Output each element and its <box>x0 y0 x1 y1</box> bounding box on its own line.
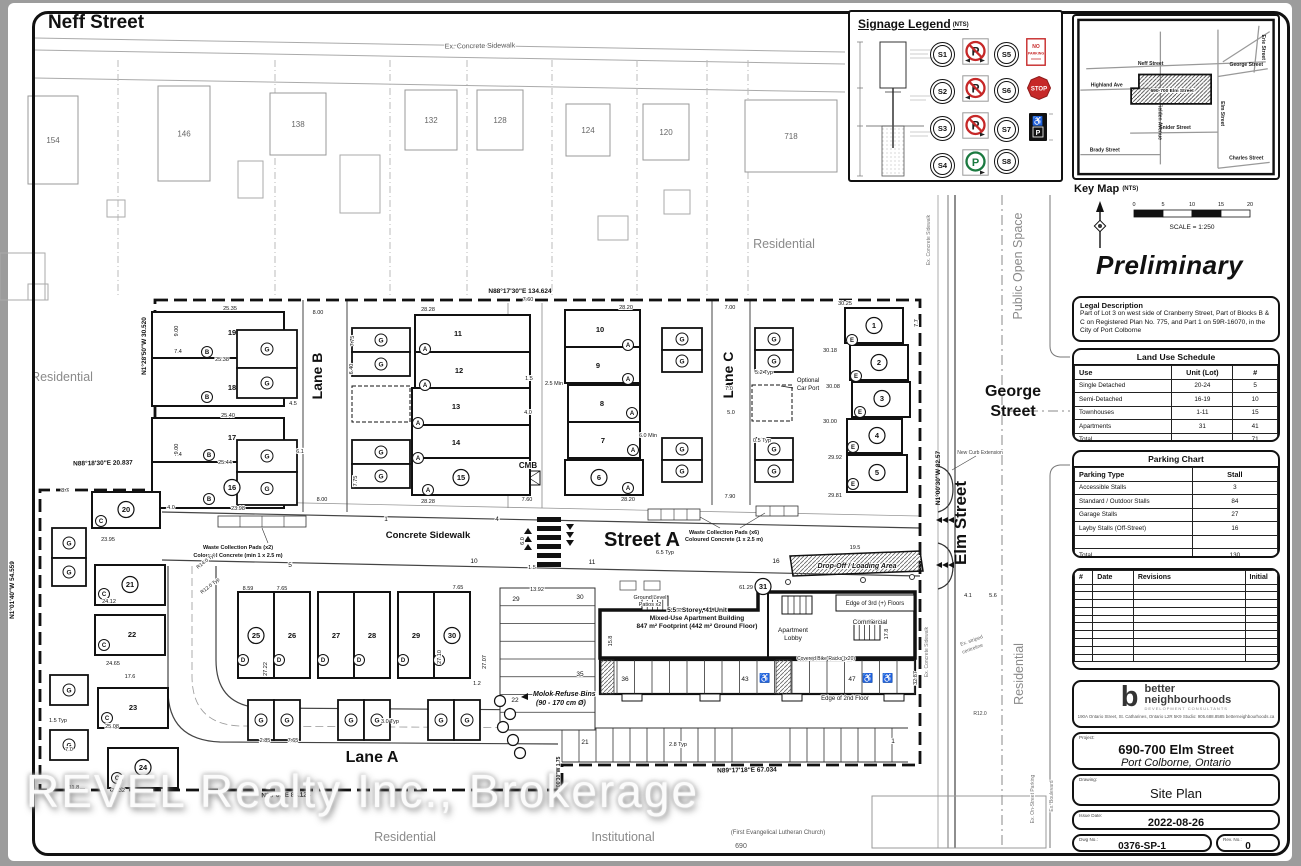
table-cell: 41 <box>1233 420 1278 434</box>
svg-text:P: P <box>972 157 979 169</box>
table-cell <box>1245 631 1277 639</box>
parking-row: Garage Stalls27 <box>1075 508 1278 522</box>
table-cell: Townhouses <box>1075 406 1172 420</box>
revisions-empty-row <box>1075 639 1278 647</box>
key-map-street-label: Neff Street <box>1138 61 1164 67</box>
table-cell <box>1093 631 1134 639</box>
table-cell: Garage Stalls <box>1075 508 1193 522</box>
table-cell <box>1075 535 1193 549</box>
crosswalk-stripe <box>537 517 561 522</box>
table-cell <box>1093 600 1134 608</box>
legal-description-panel: Legal Description Part of Lot 3 on west … <box>1072 296 1280 342</box>
lot-number: 13 <box>452 402 460 411</box>
legend-item-S8: S8 <box>994 149 1026 174</box>
scale-segment <box>1221 210 1250 217</box>
revisions-empty-row <box>1075 654 1278 662</box>
crosswalk-stripe <box>537 544 561 549</box>
molok-bin <box>515 748 526 759</box>
table-cell <box>1133 623 1245 631</box>
dimension-label: 30.08 <box>826 384 840 390</box>
dimension-label: 2.85 <box>260 738 271 744</box>
lot-number: 18 <box>228 383 236 392</box>
dimension-label: 7.65 <box>277 586 288 592</box>
bollard <box>786 580 791 585</box>
table-cell: 20-24 <box>1172 379 1233 393</box>
key-map-street-label: Charles Street <box>1229 155 1264 161</box>
legend-item-S3: S3P <box>930 112 989 144</box>
lot-number: 20 <box>122 505 130 514</box>
revisions-table: #DateRevisionsInitial <box>1074 570 1278 662</box>
stall-number: 5 <box>288 562 292 569</box>
revisions-empty-row <box>1075 623 1278 631</box>
dimension-label: 23.95 <box>101 537 115 543</box>
legend-circle: S2 <box>930 79 955 104</box>
column-header: Stall <box>1192 468 1277 482</box>
lot-number: 29 <box>412 631 420 640</box>
lot-number: 26 <box>288 631 296 640</box>
rev-no-label: Rev. No.: <box>1223 837 1242 842</box>
scale-tick-label: 20 <box>1247 202 1253 208</box>
table-cell: 15 <box>1233 406 1278 420</box>
garage-letter: G <box>264 486 269 493</box>
street-label: Street A <box>604 529 680 551</box>
shed-outline <box>238 161 263 198</box>
dwg-no-value: 0376-SP-1 <box>1080 841 1204 852</box>
stall-number: 11 <box>589 559 596 566</box>
stall-number: 22 <box>511 697 519 704</box>
parking-row <box>1075 535 1278 549</box>
leader-line <box>700 517 720 528</box>
house-number: 120 <box>659 128 673 137</box>
dimension-label: 7.0 <box>65 747 73 753</box>
dimension-label: 29.92 <box>828 455 842 461</box>
logo-tagline: DEVELOPMENT CONSULTANTS <box>1144 706 1231 711</box>
key-map-street-label: Elm Street <box>1219 101 1225 126</box>
table-cell: 16-19 <box>1172 393 1233 407</box>
table-cell <box>1245 584 1277 592</box>
lot-number: 9 <box>596 361 600 370</box>
compass-dot <box>1098 224 1102 228</box>
accessible-parking-icon: ♿ <box>862 672 873 683</box>
drawing-title-block: Drawing: Site Plan <box>1072 774 1280 806</box>
garage-letter: G <box>348 717 353 724</box>
dimension-label: 7.65 <box>288 738 299 744</box>
annotation: Car Port <box>797 386 820 392</box>
dimension-label: 13.92 <box>530 587 544 593</box>
unit-type-letter: A <box>630 411 635 417</box>
key-map-street-label: George Street <box>1230 62 1264 68</box>
annotation: Lobby <box>784 635 802 642</box>
key-map-street-label: Erie Street <box>1260 35 1266 61</box>
bearing-label: N88°18'30"E 20.837 <box>73 458 133 467</box>
stall-number: 21 <box>581 739 589 746</box>
dimension-label: 7.75 <box>353 476 359 487</box>
land-use-row: Townhouses1-1115 <box>1075 406 1278 420</box>
building-bump <box>622 694 642 701</box>
stall-number: 47 <box>848 676 856 683</box>
dimension-label: 28.28 <box>421 307 435 313</box>
stall-number: 30 <box>576 594 584 601</box>
area-label: Residential <box>31 370 93 384</box>
key-map-site-label: 690-700 Elm Street <box>1150 88 1194 94</box>
dimension-label: 25.44 <box>218 460 232 466</box>
dimension-label: 7.75 <box>350 336 356 347</box>
unit-type-letter: D <box>277 658 282 664</box>
table-cell <box>1075 646 1093 654</box>
accessible-parking-icon: ♿ <box>759 672 770 683</box>
stall-number: 35 <box>576 671 584 678</box>
dimension-label: 9.00 <box>174 326 180 337</box>
table-cell <box>1075 615 1093 623</box>
land-use-schedule-table: UseUnit (Lot)#Single Detached20-245Semi-… <box>1074 365 1278 442</box>
unit-type-letter: E <box>858 410 862 416</box>
street-label: Neff Street <box>48 12 145 33</box>
dimension-label: 5.0 <box>727 410 735 416</box>
legend-id: S4 <box>933 156 952 175</box>
table-cell <box>1133 654 1245 662</box>
annotation: R12.0 <box>973 711 987 717</box>
dimension-label: 6.1 <box>296 449 304 455</box>
land-use-row: Semi-Detached16-1910 <box>1075 393 1278 407</box>
lot-number: 27 <box>332 631 340 640</box>
dimension-label: 8.7 <box>61 488 69 494</box>
table-cell: Total <box>1075 549 1193 559</box>
parking-chart-panel: Parking Chart Parking TypeStallAccessibl… <box>1072 450 1280 558</box>
dimension-label: 17.6 <box>125 674 136 680</box>
lot-number: 23 <box>129 703 137 712</box>
table-cell <box>1245 654 1277 662</box>
annotation: CMB <box>519 461 537 470</box>
garage-letter: G <box>374 717 379 724</box>
annotation: R12.0 Typ <box>200 577 222 596</box>
lot <box>412 425 530 458</box>
table-cell <box>1093 623 1134 631</box>
key-map-street-label: Highland Ave <box>1091 82 1123 88</box>
garage-letter: G <box>771 358 776 365</box>
land-use-schedule-title: Land Use Schedule <box>1074 350 1278 365</box>
dimension-label: 6.0 <box>520 537 526 545</box>
lot-number: 14 <box>452 438 461 447</box>
table-cell: 130 <box>1192 549 1277 559</box>
svg-text:NO: NO <box>1032 44 1040 50</box>
garage-letter: G <box>771 446 776 453</box>
dimension-label: 25.35 <box>223 306 237 312</box>
legend-circle: S7 <box>994 117 1019 142</box>
project-label: Project: <box>1079 735 1095 740</box>
bearing-label: N1°00'30"W 1.75 <box>556 756 562 795</box>
dimension-label: 7.0 <box>725 386 733 392</box>
parking-chart-title: Parking Chart <box>1074 452 1278 467</box>
key-map: Neff StreetHighland AveFielden AvenueElm… <box>1074 16 1278 178</box>
area-label: Public Open Space <box>1011 212 1025 319</box>
annotation: 690 <box>735 843 747 850</box>
street-label: Concrete Sidewalk <box>386 530 471 541</box>
signage-legend-panel: Signage Legend(NTS) S1PS2PS3PS4PS5NOPARK… <box>848 10 1063 182</box>
lot-number: 2 <box>877 358 881 367</box>
annotation: Ground Level <box>633 595 666 601</box>
yield-triangle <box>566 540 574 546</box>
rev-no-value: 0 <box>1224 841 1272 852</box>
scale-segment <box>1163 210 1192 217</box>
revisions-empty-row <box>1075 607 1278 615</box>
table-cell: Accessible Stalls <box>1075 481 1193 495</box>
annotation: Commercial <box>853 619 888 626</box>
table-cell <box>1245 615 1277 623</box>
stall-number: 1 <box>891 738 895 745</box>
garage-letter: G <box>679 336 684 343</box>
svg-text:PARKING: PARKING <box>1028 52 1045 56</box>
area-label: Residential <box>374 830 436 844</box>
annotation: Edge of 2nd Floor <box>821 696 869 702</box>
molok-bin <box>498 722 509 733</box>
dimension-label: 8.59 <box>243 586 254 592</box>
unit-type-letter: A <box>626 343 631 349</box>
parking-row: Layby Stalls (Off-Street)16 <box>1075 522 1278 536</box>
dimension-label: 7.90 <box>725 494 736 500</box>
key-map-panel: Neff StreetHighland AveFielden AvenueElm… <box>1072 14 1280 180</box>
legend-item-S5: S5NOPARKING <box>994 38 1046 71</box>
garage-letter: G <box>679 468 684 475</box>
unit-type-letter: B <box>205 350 210 356</box>
legend-id: S1 <box>933 45 952 64</box>
annotation: Covered Bike Racks (x20) <box>797 656 855 662</box>
key-map-street-label: Fielden Avenue <box>1156 103 1162 140</box>
dimension-label: 11.8 <box>69 785 79 791</box>
garage-letter: G <box>378 473 383 480</box>
table-cell: 16 <box>1192 522 1277 536</box>
table-cell: 1-11 <box>1172 406 1233 420</box>
stall-number: 10 <box>470 558 478 565</box>
table-cell <box>1192 535 1277 549</box>
street-label: George <box>985 383 1041 400</box>
building-bump <box>884 694 904 701</box>
house-number: 132 <box>424 116 438 125</box>
no-parking-icon: P <box>962 38 989 70</box>
garage-letter: G <box>66 569 71 576</box>
annotation: Drop-Off / Loading Area <box>818 563 897 570</box>
leader-line <box>740 513 765 528</box>
legal-description-title: Legal Description <box>1080 301 1272 310</box>
garage-letter: G <box>378 361 383 368</box>
table-cell: 27 <box>1192 508 1277 522</box>
column-header: Date <box>1093 571 1134 585</box>
lot-number: 16 <box>228 483 236 492</box>
annotation: Optional <box>797 378 819 384</box>
dimension-label: 15.8 <box>608 636 614 647</box>
annotation: Ex. On-Street Parking <box>1030 774 1036 823</box>
garage-letter: G <box>264 453 269 460</box>
dimension-label: 28.20 <box>619 305 633 311</box>
bearing-label: N1°01'40"W 54.559 <box>8 561 16 619</box>
annotation: (90 - 170 cm Ø) <box>536 700 586 707</box>
neff-street-edge <box>35 38 845 52</box>
table-cell <box>1093 646 1134 654</box>
revisions-empty-row <box>1075 646 1278 654</box>
dimension-label: 30.00 <box>823 419 837 425</box>
project-name: 690-700 Elm Street <box>1080 742 1272 757</box>
key-map-street-label: Snider Street <box>1159 125 1191 131</box>
table-cell <box>1075 592 1093 600</box>
dimension-label: 5.6 <box>989 593 997 599</box>
stall-number: 4 <box>495 516 499 523</box>
unit-type-letter: A <box>426 488 431 494</box>
drawing-name: Site Plan <box>1080 786 1272 801</box>
dimension-label: 24.12 <box>102 599 116 605</box>
lot <box>415 352 530 388</box>
dimension-label: 27.10 <box>437 650 443 664</box>
table-cell <box>1093 654 1134 662</box>
lot-number: 15 <box>457 473 465 482</box>
house-number: 128 <box>493 116 507 125</box>
yield-triangle <box>942 562 948 568</box>
issue-date-label: Issue Date: <box>1079 813 1102 818</box>
yield-triangle <box>566 524 574 530</box>
scale-segment <box>1134 210 1163 217</box>
rev-no-block: Rev. No.: 0 <box>1216 834 1280 852</box>
revisions-header-row: #DateRevisionsInitial <box>1075 571 1278 585</box>
lot-number: 10 <box>596 325 604 334</box>
unit-type-letter: E <box>851 445 855 451</box>
dimension-label: 7.7 <box>914 319 920 327</box>
table-cell <box>1245 623 1277 631</box>
project-city: Port Colborne, Ontario <box>1080 757 1272 769</box>
table-cell <box>1245 600 1277 608</box>
garage-letter: G <box>679 358 684 365</box>
crosswalk-stripe <box>537 526 561 531</box>
unit-type-letter: D <box>401 658 406 664</box>
key-map-street-label: Brady Street <box>1090 148 1120 154</box>
dimension-label: 1.5 <box>525 376 533 382</box>
bearing-label: N88°17'30"E 134.624 <box>488 287 552 295</box>
optional-car-port <box>752 385 792 421</box>
bearing-label: N1°00'30"W 82.57 <box>934 451 942 506</box>
logo-address: 190A Ontario Street, St. Catharines, Ont… <box>1074 714 1278 719</box>
dimension-label: 4.5 <box>289 401 297 407</box>
table-cell <box>1075 654 1093 662</box>
annotation: Ex. Concrete Sidewalk <box>924 626 930 677</box>
area-label: Institutional <box>591 830 654 844</box>
no-parking-text-icon: NOPARKING <box>1026 38 1046 71</box>
table-cell: Single Detached <box>1075 379 1172 393</box>
garage-letter: G <box>679 446 684 453</box>
dimension-label: 7.60 <box>523 297 534 303</box>
lot-number: 22 <box>128 630 136 639</box>
column-header: # <box>1075 571 1093 585</box>
unit-type-letter: A <box>626 486 631 492</box>
ground-level-patio <box>620 581 636 590</box>
lot <box>415 315 530 352</box>
shed-outline <box>340 155 380 213</box>
revisions-empty-row <box>1075 615 1278 623</box>
stall-number: 29 <box>512 596 520 603</box>
issue-date-block: Issue Date: 2022-08-26 <box>1072 810 1280 830</box>
legend-circle: S8 <box>994 149 1019 174</box>
annotation: (First Evangelical Lutheran Church) <box>731 830 825 836</box>
church-outline <box>872 796 1046 848</box>
hatched-stall <box>601 660 614 694</box>
legend-circle: S1 <box>930 42 955 67</box>
accessible-parking-icon: ♿P <box>1026 112 1054 147</box>
legal-description-text: Part of Lot 3 on west side of Cranberry … <box>1080 310 1272 336</box>
unit-type-letter: C <box>105 716 110 722</box>
lot-number: 21 <box>126 580 134 589</box>
legend-circle: S5 <box>994 42 1019 67</box>
land-use-schedule-panel: Land Use Schedule UseUnit (Lot)#Single D… <box>1072 348 1280 442</box>
street-label: Street <box>990 403 1036 420</box>
legend-item-S7: S7♿P <box>994 112 1054 147</box>
garage-letter: G <box>378 449 383 456</box>
street-label: Elm Street <box>951 481 970 565</box>
issue-date-value: 2022-08-26 <box>1080 817 1272 829</box>
unit-type-letter: B <box>207 497 212 503</box>
table-cell <box>1133 639 1245 647</box>
garage-letter: G <box>284 717 289 724</box>
lot-number: 12 <box>455 366 463 375</box>
legend-id: S6 <box>997 81 1016 100</box>
dimension-label: 17.8 <box>884 629 890 640</box>
dimension-label: 2.5 Min <box>545 381 563 387</box>
signage-legend-title: Signage Legend(NTS) <box>858 17 969 31</box>
unit-type-letter: A <box>416 456 421 462</box>
stall-number: 1 <box>384 516 388 523</box>
annotation: Patios x2 <box>639 602 662 608</box>
stop-sign-icon: STOP <box>1026 75 1052 106</box>
lot-number: 8 <box>600 399 604 408</box>
dimension-label: 25.40 <box>221 413 235 419</box>
dimension-label: 1.5 <box>528 565 536 571</box>
legend-id: S7 <box>997 120 1016 139</box>
no-parking-icon: P <box>962 75 989 107</box>
leader-line <box>262 528 268 543</box>
table-cell: 84 <box>1192 495 1277 509</box>
street-label: Lane A <box>346 749 399 766</box>
dimension-label: 7.4 <box>174 349 182 355</box>
lot-number: 30 <box>448 631 456 640</box>
project-title-block: Project: 690-700 Elm Street Port Colborn… <box>1072 732 1280 770</box>
shed-outline <box>664 190 690 214</box>
annotation: 5.5 - Storey, 41 Unit <box>667 607 728 614</box>
molok-bin <box>505 709 516 720</box>
unit-type-letter: A <box>423 383 428 389</box>
table-cell <box>1093 592 1134 600</box>
unit-type-letter: A <box>416 421 421 427</box>
lot-number: 19 <box>228 328 236 337</box>
table-cell: Layby Stalls (Off-Street) <box>1075 522 1193 536</box>
key-map-label: Key Map (NTS) <box>1074 183 1138 195</box>
legend-item-S1: S1P <box>930 38 989 70</box>
dimension-label: 1.5 Typ <box>49 718 67 724</box>
scale-tick-label: 15 <box>1218 202 1224 208</box>
dimension-label: 4.1 <box>964 593 972 599</box>
svg-text:STOP: STOP <box>1031 86 1047 92</box>
land-use-row: Apartments3141 <box>1075 420 1278 434</box>
lot-number: 31 <box>759 582 767 591</box>
dimension-label: 61.29 <box>739 585 753 591</box>
table-cell: 5 <box>1233 379 1278 393</box>
table-cell <box>1075 607 1093 615</box>
lot-number: 6 <box>597 473 601 482</box>
annotation: Waste Collection Pads (x2) <box>203 545 273 551</box>
table-cell <box>1093 584 1134 592</box>
table-cell <box>1093 639 1134 647</box>
house-number: 718 <box>784 132 798 141</box>
shed-outline <box>598 216 628 240</box>
land-use-row: Total71 <box>1075 433 1278 442</box>
parking-row: Accessible Stalls3 <box>1075 481 1278 495</box>
dimension-label: 24.65 <box>106 661 120 667</box>
dimension-label: 30.18 <box>823 348 837 354</box>
table-cell <box>1245 607 1277 615</box>
